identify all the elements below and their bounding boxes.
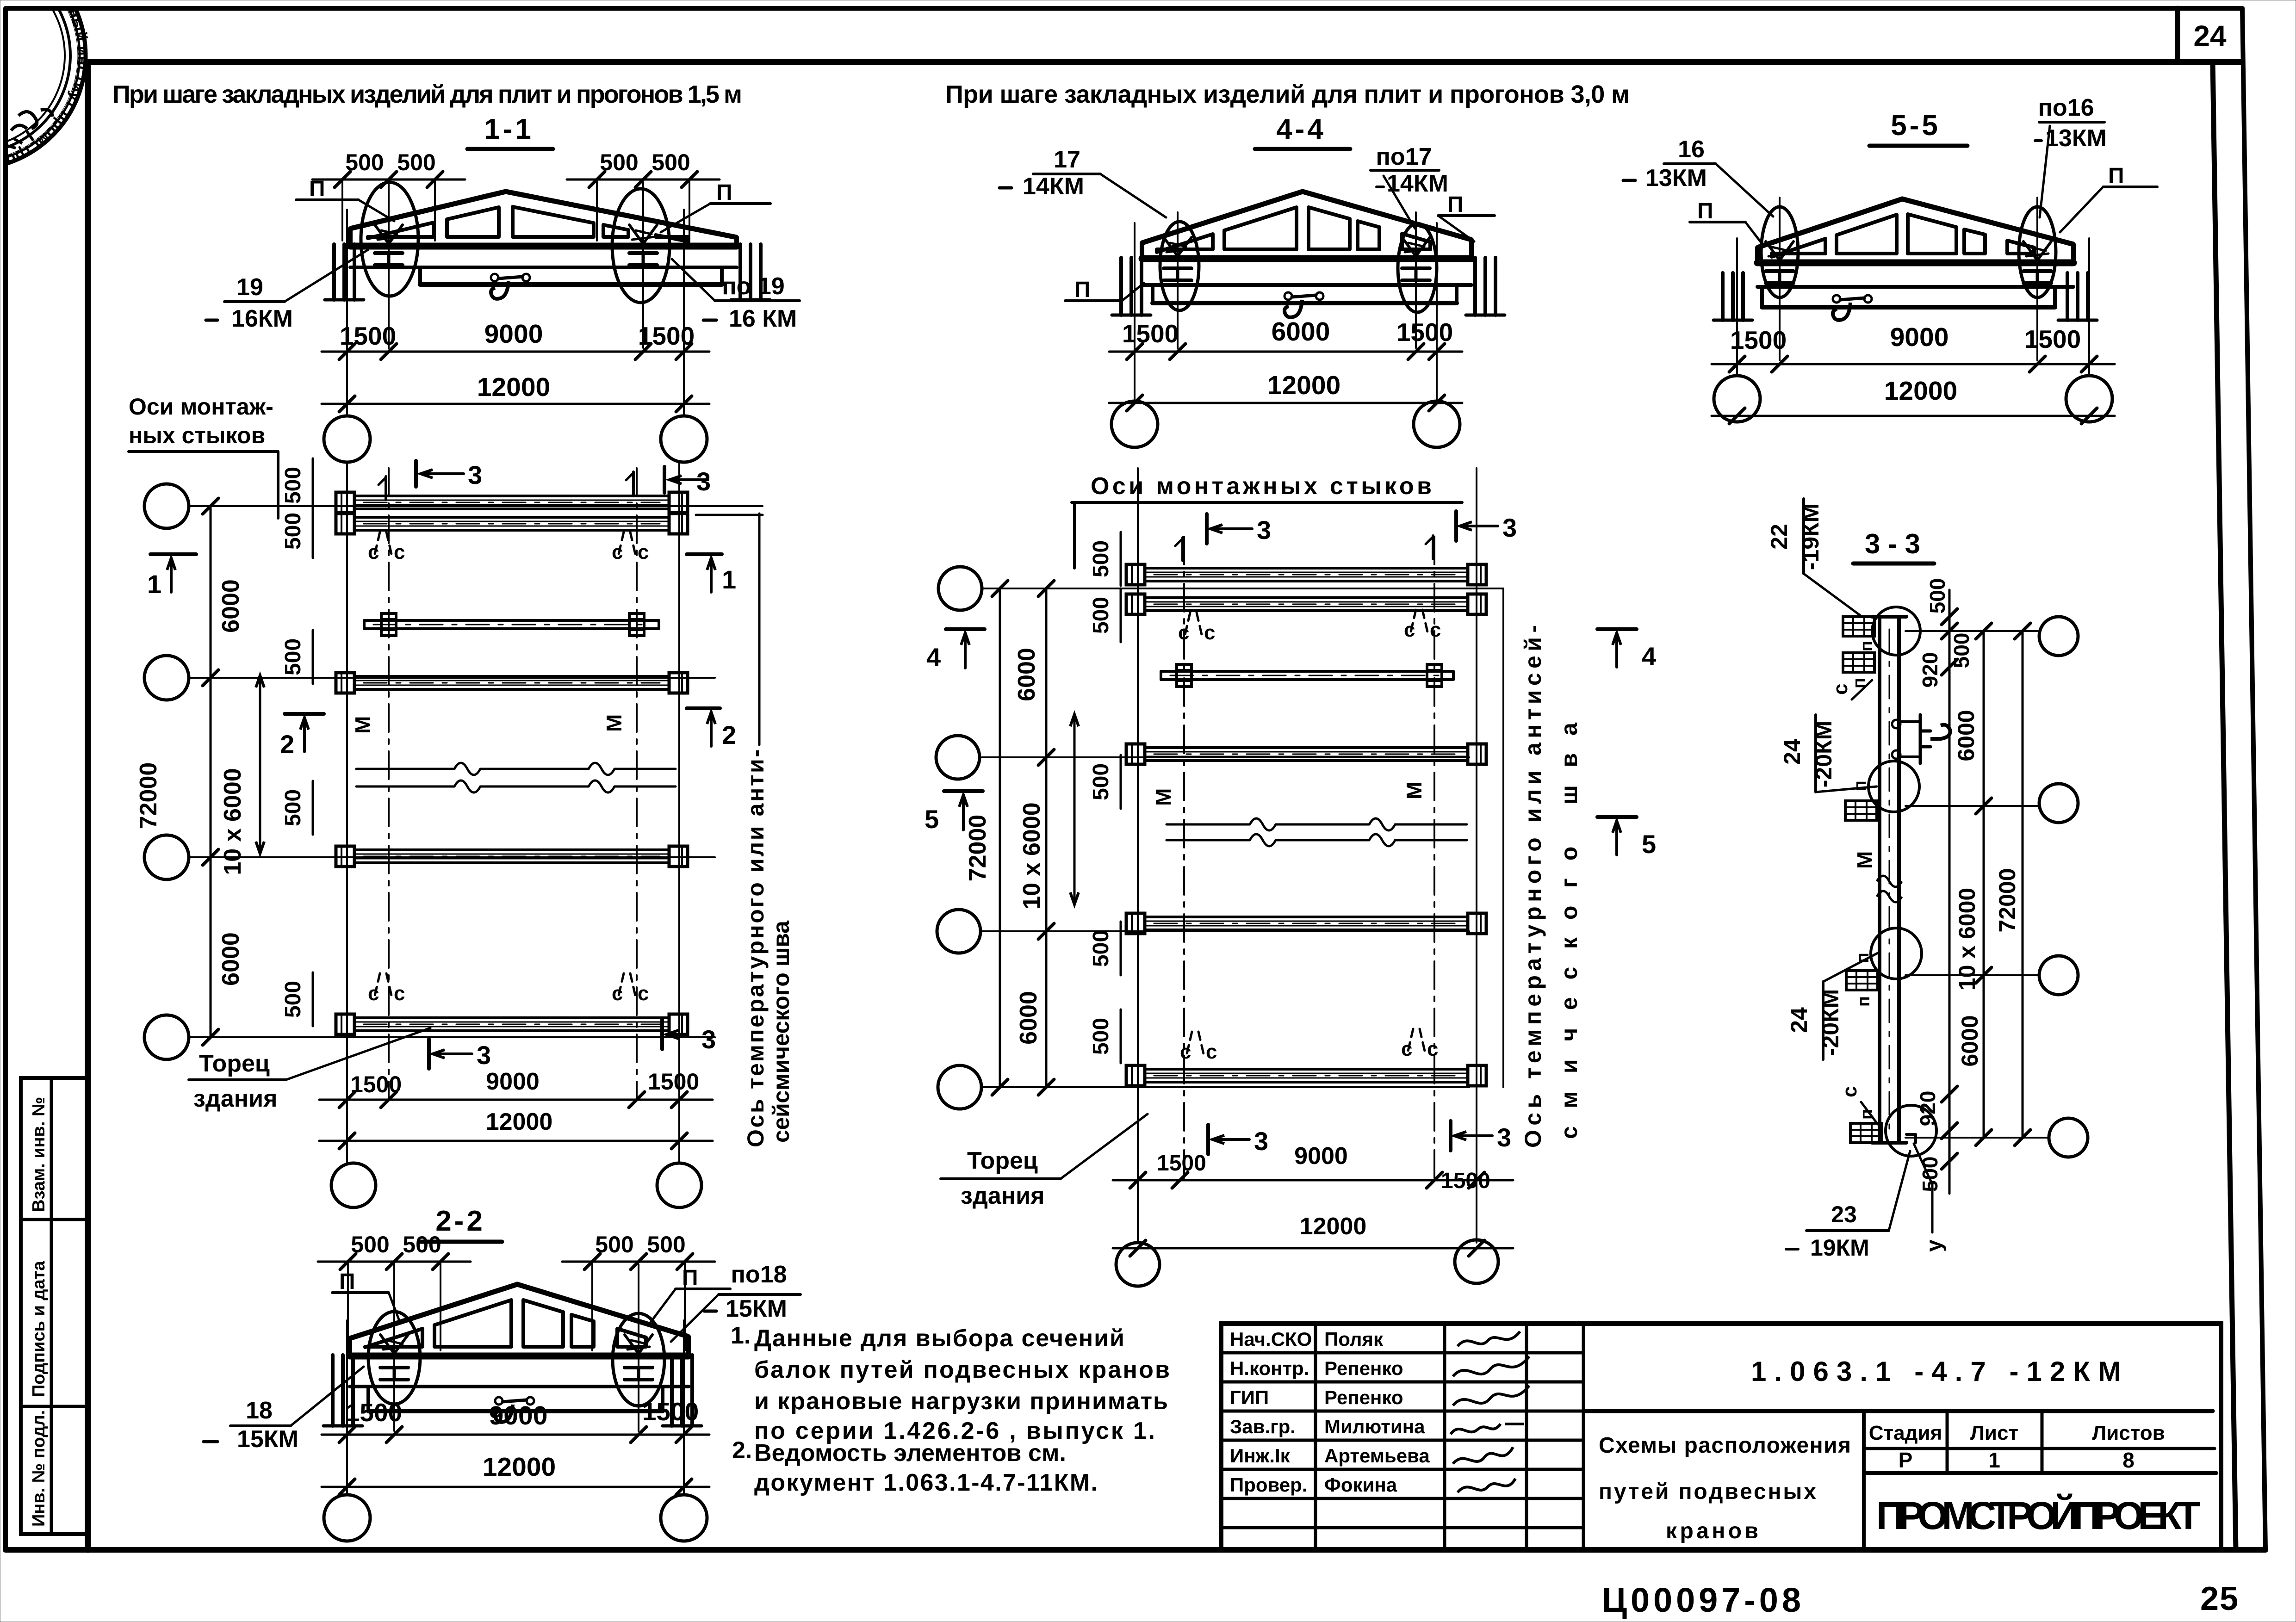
svg-text:1.: 1.: [731, 1322, 751, 1349]
svg-text:16 КМ: 16 КМ: [729, 305, 797, 332]
svg-text:-20КМ: -20КМ: [1818, 989, 1843, 1056]
svg-text:500: 500: [1089, 763, 1113, 800]
svg-text:500: 500: [281, 467, 305, 504]
svg-text:Торец: Торец: [967, 1147, 1038, 1174]
svg-text:П: П: [1447, 192, 1464, 217]
svg-text:9000: 9000: [484, 319, 543, 349]
svg-text:кранов: кранов: [1666, 1519, 1758, 1543]
svg-text:500: 500: [403, 1232, 441, 1257]
svg-text:по16: по16: [2038, 94, 2094, 121]
svg-text:500: 500: [397, 149, 435, 175]
svg-text:Милютина: Милютина: [1324, 1416, 1425, 1437]
svg-text:6000: 6000: [1013, 648, 1040, 701]
svg-text:3: 3: [701, 1025, 716, 1054]
svg-text:1500: 1500: [638, 322, 695, 350]
svg-text:8: 8: [2122, 1448, 2135, 1472]
svg-text:Репенко: Репенко: [1324, 1357, 1403, 1379]
svg-text:Н.контр.: Н.контр.: [1230, 1357, 1309, 1379]
svg-text:920: 920: [1918, 652, 1942, 688]
svg-text:23: 23: [1831, 1201, 1857, 1227]
svg-text:М: М: [1402, 782, 1426, 799]
svg-text:1500: 1500: [642, 1397, 699, 1426]
svg-text:ных стыков: ных стыков: [129, 422, 265, 448]
svg-text:ГИП: ГИП: [1230, 1387, 1269, 1408]
svg-text:500: 500: [281, 513, 305, 550]
svg-text:Данные для выбора сечений: Данные для выбора сечений: [754, 1325, 1124, 1352]
svg-text:9000: 9000: [1294, 1143, 1348, 1170]
svg-text:1: 1: [147, 570, 161, 599]
svg-text:1500: 1500: [2024, 325, 2081, 353]
svg-text:Нач.СКО: Нач.СКО: [1230, 1328, 1312, 1350]
svg-text:П: П: [716, 180, 732, 205]
svg-text:500: 500: [1089, 930, 1113, 967]
svg-text:М: М: [602, 714, 626, 732]
svg-text:Инж.Iк: Инж.Iк: [1230, 1445, 1291, 1467]
svg-text:-19КМ: -19КМ: [1798, 503, 1824, 570]
svg-text:Оси монтаж-: Оси монтаж-: [129, 394, 273, 420]
svg-text:1: 1: [722, 565, 736, 594]
svg-text:5: 5: [925, 805, 939, 834]
svg-text:Артемьева: Артемьева: [1324, 1445, 1430, 1467]
svg-text:6000: 6000: [217, 579, 244, 633]
svg-text:1: 1: [1988, 1448, 2000, 1472]
svg-text:9000: 9000: [1890, 322, 1949, 352]
svg-text:5-5: 5-5: [1891, 110, 1941, 142]
svg-text:1500: 1500: [1441, 1169, 1490, 1193]
svg-text:2.: 2.: [732, 1437, 752, 1464]
svg-text:500: 500: [281, 981, 305, 1018]
svg-text:с: с: [612, 541, 623, 563]
svg-text:1500: 1500: [1157, 1151, 1206, 1176]
svg-text:ПРОМСТРОЙПРОЕКТ: ПРОМСТРОЙПРОЕКТ: [1876, 1494, 2200, 1537]
svg-text:с: с: [368, 982, 379, 1005]
svg-text:500: 500: [600, 149, 638, 175]
svg-text:6000: 6000: [1957, 1015, 1983, 1066]
svg-text:13КМ: 13КМ: [2045, 125, 2107, 152]
svg-text:3: 3: [1497, 1123, 1511, 1152]
svg-text:Взам. инв. №: Взам. инв. №: [29, 1097, 49, 1212]
svg-text:с: с: [1427, 1038, 1438, 1060]
svg-text:по 19: по 19: [722, 273, 784, 300]
svg-text:24: 24: [1786, 1007, 1812, 1033]
svg-text:При шаге закладных изделий для: При шаге закладных изделий для плит и пр…: [945, 80, 1630, 108]
svg-text:4-4: 4-4: [1276, 113, 1326, 145]
svg-text:500: 500: [652, 149, 690, 175]
svg-text:п: п: [1854, 996, 1874, 1007]
svg-text:с: с: [394, 982, 405, 1005]
svg-text:24: 24: [2193, 19, 2227, 53]
svg-text:Ведомость элементов см.: Ведомость элементов см.: [754, 1440, 1066, 1467]
svg-text:2-2: 2-2: [435, 1205, 485, 1237]
svg-text:и крановые нагрузки принимать: и крановые нагрузки принимать: [754, 1388, 1168, 1415]
svg-text:с: с: [1206, 1040, 1217, 1063]
svg-text:1500: 1500: [1396, 318, 1453, 347]
svg-text:12000: 12000: [1884, 376, 1958, 406]
svg-text:17: 17: [1054, 146, 1080, 173]
svg-text:6000: 6000: [1015, 991, 1042, 1045]
svg-text:12000: 12000: [477, 372, 551, 402]
svg-text:Инв. № подл.: Инв. № подл.: [29, 1410, 49, 1527]
svg-text:с: с: [1401, 1038, 1412, 1060]
svg-text:с: с: [638, 982, 649, 1005]
svg-text:с: с: [1180, 1040, 1191, 1063]
svg-text:14КМ: 14КМ: [1023, 173, 1084, 200]
svg-text:10 x 6000: 10 x 6000: [1954, 888, 1980, 991]
svg-text:6000: 6000: [217, 932, 244, 986]
svg-text:1-1: 1-1: [484, 113, 534, 145]
svg-text:12000: 12000: [483, 1452, 556, 1482]
svg-text:5: 5: [1642, 830, 1656, 859]
svg-text:П: П: [2108, 164, 2124, 188]
svg-text:1500: 1500: [1730, 326, 1787, 354]
svg-text:документ 1.063.1-4.7-11КМ.: документ 1.063.1-4.7-11КМ.: [754, 1469, 1098, 1496]
svg-text:Схемы расположения: Схемы расположения: [1599, 1433, 1851, 1458]
svg-text:15КМ: 15КМ: [237, 1426, 298, 1453]
svg-text:Ц00097-08: Ц00097-08: [1602, 1581, 1801, 1619]
svg-text:25: 25: [2200, 1580, 2239, 1617]
svg-text:500: 500: [1089, 540, 1113, 577]
svg-text:по17: по17: [1376, 143, 1432, 170]
svg-text:500: 500: [647, 1232, 685, 1257]
svg-text:1500: 1500: [648, 1069, 699, 1095]
svg-text:с: с: [638, 541, 649, 563]
svg-text:16: 16: [1678, 136, 1705, 163]
svg-text:9000: 9000: [489, 1401, 548, 1430]
svg-text:12000: 12000: [1300, 1213, 1367, 1240]
svg-text:1500: 1500: [346, 1398, 402, 1427]
svg-text:19: 19: [236, 274, 263, 301]
svg-text:18: 18: [246, 1397, 273, 1424]
svg-text:2: 2: [722, 720, 736, 749]
svg-text:1500: 1500: [350, 1071, 402, 1097]
svg-text:3: 3: [1257, 515, 1271, 545]
svg-text:3: 3: [696, 467, 711, 496]
svg-text:с: с: [1829, 684, 1852, 695]
svg-text:19КМ: 19КМ: [1810, 1235, 1869, 1261]
svg-text:3: 3: [477, 1040, 491, 1070]
svg-text:500: 500: [351, 1232, 389, 1257]
svg-text:Р: Р: [1899, 1448, 1913, 1472]
svg-text:с: с: [1430, 619, 1441, 641]
svg-text:с: с: [394, 541, 405, 563]
svg-text:П: П: [1697, 199, 1713, 223]
svg-text:Зав.гр.: Зав.гр.: [1230, 1416, 1296, 1437]
svg-text:П: П: [1074, 278, 1091, 302]
svg-text:При шаге закладных изделий для: При шаге закладных изделий для плит и пр…: [112, 80, 742, 108]
svg-text:с: с: [368, 541, 379, 563]
svg-text:П: П: [339, 1269, 355, 1294]
svg-text:12000: 12000: [486, 1108, 553, 1135]
svg-text:Подпись и дата: Подпись и дата: [29, 1261, 49, 1397]
svg-text:72000: 72000: [135, 762, 162, 830]
svg-text:72000: 72000: [964, 815, 991, 882]
svg-text:3: 3: [468, 460, 482, 489]
svg-text:500: 500: [595, 1232, 633, 1257]
svg-text:500: 500: [281, 789, 305, 826]
svg-text:М: М: [351, 716, 375, 734]
svg-text:3 - 3: 3 - 3: [1865, 528, 1920, 559]
svg-text:500: 500: [345, 149, 384, 175]
svg-text:500: 500: [281, 638, 305, 675]
svg-text:с: с: [1404, 619, 1415, 641]
svg-text:у: у: [1922, 1239, 1947, 1252]
svg-text:Провер.: Провер.: [1230, 1474, 1307, 1496]
svg-text:500: 500: [1925, 578, 1949, 614]
svg-text:Торец: Торец: [199, 1050, 270, 1077]
svg-text:с: с: [1204, 621, 1215, 644]
svg-text:13КМ: 13КМ: [1645, 165, 1707, 192]
svg-text:10 x 6000: 10 x 6000: [1018, 802, 1045, 909]
svg-text:4: 4: [926, 643, 941, 672]
svg-text:22: 22: [1766, 524, 1792, 550]
svg-text:М: М: [1853, 851, 1877, 869]
svg-text:Поляк: Поляк: [1324, 1328, 1384, 1350]
svg-text:72000: 72000: [1994, 868, 2020, 932]
svg-text:Листов: Листов: [2092, 1422, 2165, 1444]
svg-text:16КМ: 16КМ: [231, 305, 293, 332]
svg-text:сейсмического шва: сейсмического шва: [768, 920, 794, 1143]
svg-text:9000: 9000: [486, 1068, 540, 1095]
svg-text:1500: 1500: [340, 322, 396, 350]
svg-text:П: П: [682, 1266, 698, 1290]
svg-text:Стадия: Стадия: [1869, 1422, 1942, 1444]
svg-text:10 x 6000: 10 x 6000: [219, 768, 246, 875]
svg-text:с: с: [1838, 1086, 1861, 1097]
svg-text:здания: здания: [193, 1085, 278, 1112]
svg-text:по18: по18: [731, 1261, 787, 1288]
svg-text:Лист: Лист: [1970, 1422, 2018, 1444]
svg-text:здания: здания: [961, 1182, 1045, 1209]
svg-text:12000: 12000: [1267, 371, 1341, 400]
svg-text:с: с: [1178, 621, 1189, 644]
svg-text:920: 920: [1916, 1091, 1940, 1127]
svg-text:15КМ: 15КМ: [726, 1295, 787, 1322]
svg-text:500: 500: [1089, 1018, 1113, 1055]
svg-text:П: П: [309, 177, 325, 201]
svg-text:Ось температурного или анти-: Ось температурного или анти-: [743, 749, 769, 1147]
svg-text:500: 500: [1089, 597, 1113, 634]
svg-text:500: 500: [1949, 633, 1973, 669]
svg-text:М: М: [1151, 788, 1175, 806]
svg-text:3: 3: [1502, 513, 1517, 542]
svg-text:Репенко: Репенко: [1324, 1387, 1403, 1408]
svg-text:6000: 6000: [1953, 710, 1979, 761]
svg-text:4: 4: [1642, 642, 1656, 671]
svg-text:п: п: [1857, 641, 1876, 651]
svg-text:3: 3: [1254, 1127, 1268, 1156]
svg-text:Фокина: Фокина: [1324, 1474, 1397, 1496]
svg-text:с: с: [612, 982, 623, 1005]
svg-text:1500: 1500: [1122, 319, 1179, 348]
svg-text:6000: 6000: [1272, 317, 1330, 347]
svg-text:14КМ: 14КМ: [1387, 170, 1448, 197]
svg-text:2: 2: [280, 730, 294, 759]
svg-text:24: 24: [1779, 739, 1805, 765]
